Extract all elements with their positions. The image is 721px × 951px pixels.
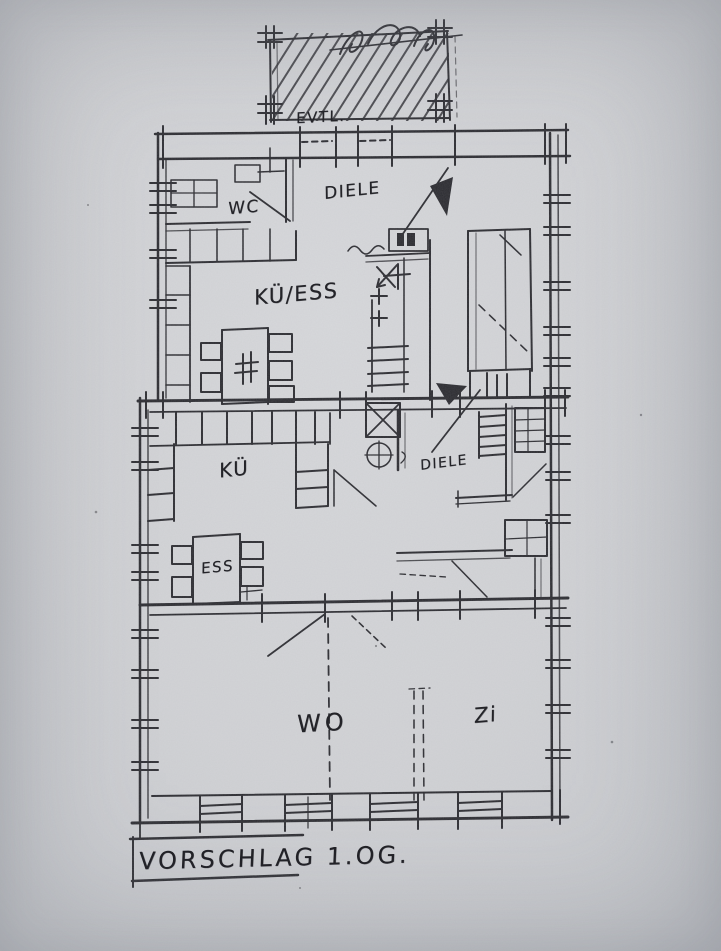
bottom-windows [140, 790, 560, 838]
hall-upper-door [400, 168, 453, 238]
table-hash-icon [235, 352, 258, 384]
floor-plan-drawing [0, 0, 721, 951]
divider-wall-middle-bottom [140, 590, 568, 656]
door-direction-arrow-icon [430, 177, 453, 216]
room-label-wc: WC [228, 197, 260, 220]
door-direction-arrow-icon-2 [436, 383, 467, 405]
closet-middle-right [515, 408, 545, 452]
kitchen-middle-door [334, 411, 405, 506]
windows-left-wall-lower [132, 428, 158, 770]
balcony-scribble [330, 25, 462, 54]
stairs-middle-treads [479, 412, 506, 458]
window-left-upper [150, 183, 176, 308]
wc-counter-row [166, 229, 296, 263]
kitchen-dining-counters [166, 266, 190, 402]
balcony-note-label: EVTL. [296, 107, 346, 128]
counter-left-column [148, 444, 174, 521]
room-label-dining: ESS [201, 557, 234, 578]
counter-corner-column [296, 444, 328, 508]
balcony-hatched [240, 20, 497, 124]
closet-base-ticks [470, 369, 530, 397]
shaft-box [365, 403, 400, 469]
stair-treads [368, 346, 408, 386]
paper-grain-overlay [0, 0, 721, 951]
hall-middle [397, 390, 547, 599]
chairs [201, 334, 294, 402]
top-wall [155, 124, 570, 172]
closet-upper-right [468, 229, 532, 397]
room-label-room: Zi [474, 702, 498, 728]
windows-right-wall [544, 195, 570, 758]
room-label-living: WO [297, 708, 348, 739]
bottom-wall [132, 790, 568, 838]
room-label-kitchen: KÜ [219, 455, 249, 482]
stairs-upper [348, 229, 430, 400]
dining-table-upper [201, 328, 294, 404]
scanned-floor-plan-page: EVTL. WC DIELE KÜ/ESS KÜ DIELE ESS WO Zi… [0, 0, 721, 951]
optional-openings-dashed [302, 140, 390, 142]
